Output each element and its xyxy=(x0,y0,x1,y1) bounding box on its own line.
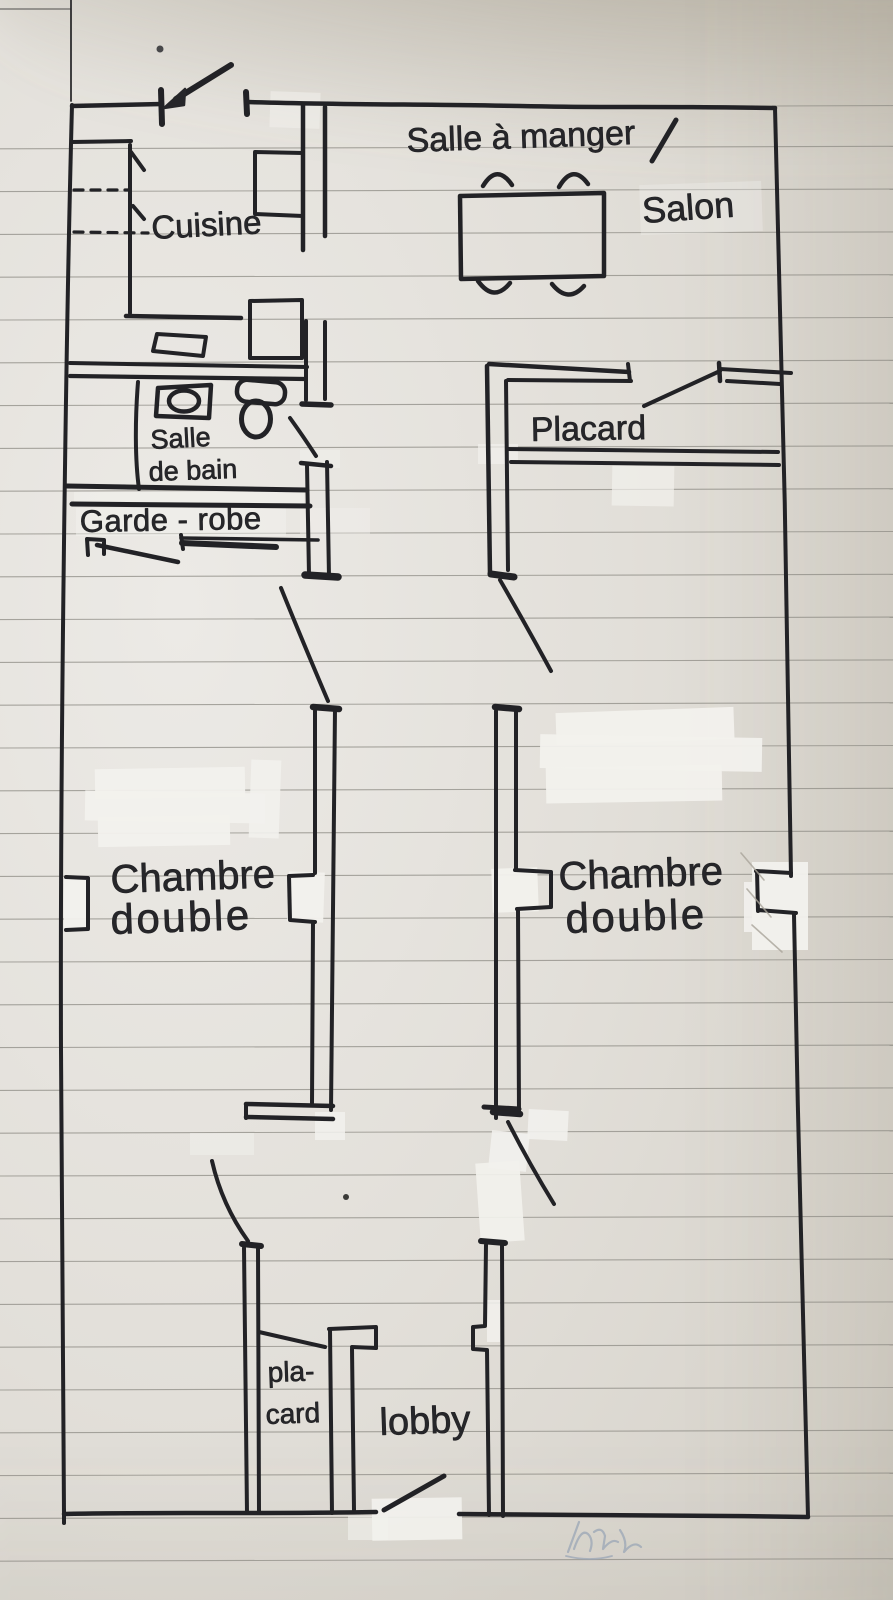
svg-text:card: card xyxy=(265,1397,321,1430)
svg-text:Salon: Salon xyxy=(641,184,736,231)
svg-text:Salle à manger: Salle à manger xyxy=(406,114,636,160)
svg-text:lobby: lobby xyxy=(379,1399,471,1444)
svg-text:de bain: de bain xyxy=(148,454,238,487)
svg-text:Garde - robe: Garde - robe xyxy=(80,501,262,539)
svg-text:Cuisine: Cuisine xyxy=(150,203,262,246)
svg-text:double: double xyxy=(565,890,708,942)
svg-text:pla-: pla- xyxy=(267,1355,315,1388)
svg-text:Placard: Placard xyxy=(530,409,646,449)
svg-text:double: double xyxy=(110,891,253,943)
svg-text:Salle: Salle xyxy=(150,422,212,455)
